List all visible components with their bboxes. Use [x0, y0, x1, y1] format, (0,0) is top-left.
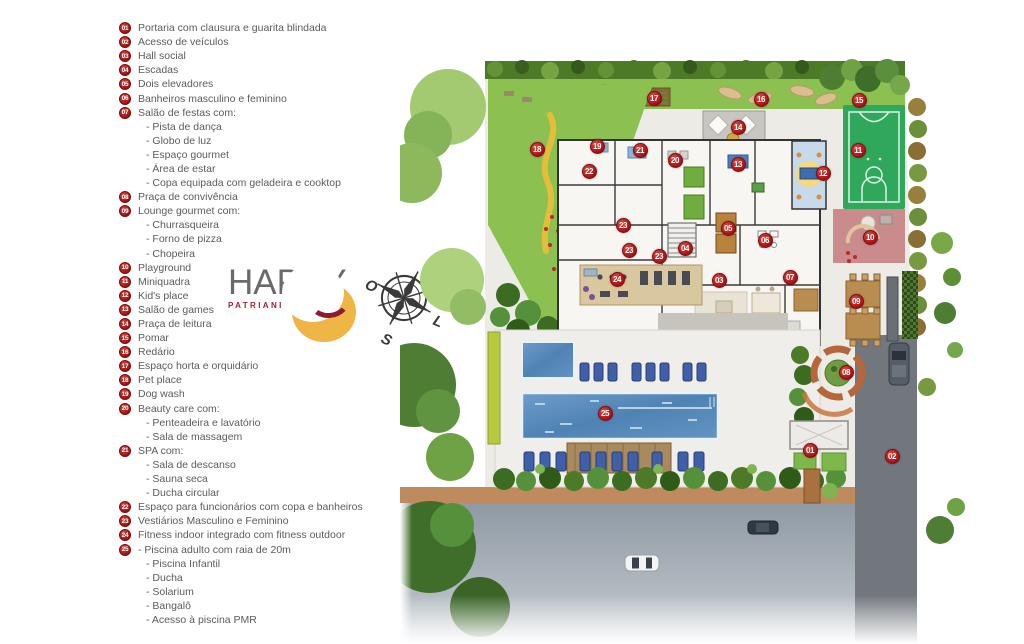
legend-number-badge: 23: [119, 515, 131, 527]
plan-marker-04: 04: [678, 241, 693, 256]
legend-item-label: Praça de leitura: [138, 318, 212, 330]
legend-number-badge: 21: [119, 445, 131, 457]
car-driveway: [889, 343, 909, 385]
entry-walkway: [804, 469, 820, 503]
compass-o: O: [362, 276, 380, 296]
plan-marker-10: 10: [863, 230, 878, 245]
legend-item-label: Praça de convivência: [138, 191, 238, 203]
legend-sub-item: - Ducha circular: [119, 486, 419, 500]
plan-marker-20: 20: [668, 153, 683, 168]
plan-marker-18: 18: [530, 142, 545, 157]
legend-item: 08Praça de convivência: [119, 190, 419, 204]
legend-sub-item: - Forno de pizza: [119, 232, 419, 246]
plan-marker-21: 21: [633, 143, 648, 158]
legend-item-label: Salão de games: [138, 304, 214, 316]
site-plan-drawing: [400, 55, 1024, 644]
legend-item: 17Espaço horta e orquidário: [119, 359, 419, 373]
legend-item: 21SPA com:: [119, 444, 419, 458]
legend-item: 20Beauty care com:: [119, 402, 419, 416]
plan-marker-23: 23: [652, 249, 667, 264]
smile-crescent-icon: [290, 282, 360, 340]
legend-number-badge: 24: [119, 529, 131, 541]
legend-item-label: - Piscina adulto com raia de 20m: [138, 544, 291, 556]
legend-number-badge: 10: [119, 262, 131, 274]
legend-sub-item: - Piscina Infantil: [119, 557, 419, 571]
legend-item-label: SPA com:: [138, 445, 183, 457]
legend-item-label: Redário: [138, 346, 175, 358]
legend-item-label: Escadas: [138, 64, 178, 76]
plan-marker-14: 14: [731, 120, 746, 135]
legend-item: 05Dois elevadores: [119, 77, 419, 91]
legend-item-label: Portaria com clausura e guarita blindada: [138, 22, 327, 34]
legend-item-label: Pet place: [138, 374, 182, 386]
miniquadra: [843, 105, 905, 209]
planter: [684, 167, 704, 187]
legend-sub-item: - Acesso à piscina PMR: [119, 613, 419, 627]
legend-number-badge: 11: [119, 276, 131, 288]
legend-number-badge: 18: [119, 374, 131, 386]
legend-sub-item: - Bangalô: [119, 599, 419, 613]
legend-item-label: Banheiros masculino e feminino: [138, 93, 287, 105]
legend-item: 09Lounge gourmet com:: [119, 204, 419, 218]
plan-marker-05: 05: [721, 221, 736, 236]
legend-number-badge: 01: [119, 22, 131, 34]
legend-number-badge: 12: [119, 290, 131, 302]
legend-sub-item: - Solarium: [119, 585, 419, 599]
legend-number-badge: 08: [119, 191, 131, 203]
plan-marker-13: 13: [731, 157, 746, 172]
legend-item: 07Salão de festas com:: [119, 106, 419, 120]
wood-floor: [794, 289, 818, 311]
legend-item: 18Pet place: [119, 373, 419, 387]
legend-item-label: Dois elevadores: [138, 78, 213, 90]
legend-sub-item: - Sala de descanso: [119, 458, 419, 472]
legend-item-label: Vestiários Masculino e Feminino: [138, 515, 289, 527]
legend-item: 24Fitness indoor integrado com fitness o…: [119, 528, 419, 542]
legend-item-label: Salão de festas com:: [138, 107, 236, 119]
car-street-dark: [748, 521, 778, 534]
plan-marker-19: 19: [590, 139, 605, 154]
plan-marker-23: 23: [622, 243, 637, 258]
site-plan: 0102030405060708091011121314151617181920…: [400, 55, 1024, 644]
legend-item-label: Lounge gourmet com:: [138, 205, 240, 217]
pool-deck: [488, 330, 820, 487]
legend-number-badge: 19: [119, 388, 131, 400]
plan-marker-08: 08: [839, 365, 854, 380]
plan-marker-23: 23: [616, 218, 631, 233]
plan-marker-11: 11: [851, 143, 866, 158]
legend-number-badge: 17: [119, 360, 131, 372]
plan-marker-07: 07: [783, 270, 798, 285]
legend-sub-item: - Penteadeira e lavatório: [119, 416, 419, 430]
legend-number-badge: 04: [119, 64, 131, 76]
plan-marker-15: 15: [852, 93, 867, 108]
legend-sub-item: - Ducha: [119, 571, 419, 585]
legend-number-badge: 09: [119, 205, 131, 217]
happy-patriani-logo: HAPPY PATRIANI: [228, 266, 368, 341]
legend-number-badge: 06: [119, 93, 131, 105]
legend-item: 01Portaria com clausura e guarita blinda…: [119, 21, 419, 35]
legend-number-badge: 22: [119, 501, 131, 513]
legend-number-badge: 13: [119, 304, 131, 316]
legend-number-badge: 02: [119, 36, 131, 48]
plan-marker-22: 22: [582, 164, 597, 179]
legend-sub-item: - Área de estar: [119, 162, 419, 176]
legend-number-badge: 05: [119, 78, 131, 90]
checker-hedge: [902, 271, 918, 339]
legend-number-badge: 03: [119, 50, 131, 62]
legend-item-label: Playground: [138, 262, 191, 274]
plan-marker-12: 12: [816, 166, 831, 181]
legend-item-label: Fitness indoor integrado com fitness out…: [138, 529, 345, 541]
legend-sub-item: - Copa equipada com geladeira e cooktop: [119, 176, 419, 190]
legend-number-badge: 25: [119, 544, 131, 556]
legend-item-label: Miniquadra: [138, 276, 190, 288]
sidewalk: [400, 487, 857, 503]
legend-item-label: Pomar: [138, 332, 169, 344]
legend-sub-item: - Globo de luz: [119, 134, 419, 148]
plan-marker-01: 01: [803, 443, 818, 458]
legend-item-label: Beauty care com:: [138, 403, 220, 415]
legend-item-label: Espaço horta e orquidário: [138, 360, 258, 372]
legend-item-label: Espaço para funcionários com copa e banh…: [138, 501, 363, 513]
east-trees: [918, 232, 965, 544]
car-street-white: [625, 555, 659, 571]
legend-number-badge: 14: [119, 318, 131, 330]
legend-number-badge: 07: [119, 107, 131, 119]
grill-counter: [887, 277, 898, 341]
legend-number-badge: 15: [119, 332, 131, 344]
main-pool: [522, 393, 718, 439]
lane-planter: [488, 332, 500, 444]
plan-marker-02: 02: [885, 449, 900, 464]
legend-item: 02Acesso de veículos: [119, 35, 419, 49]
legend-sub-item: - Churrasqueira: [119, 218, 419, 232]
legend-item: 03Hall social: [119, 49, 419, 63]
legend-sub-item: - Sauna seca: [119, 472, 419, 486]
legend-item: 22Espaço para funcionários com copa e ba…: [119, 500, 419, 514]
plan-marker-03: 03: [712, 273, 727, 288]
legend-item-label: Hall social: [138, 50, 186, 62]
compass-s: S: [378, 330, 394, 350]
plan-marker-16: 16: [754, 92, 769, 107]
legend-item: 23Vestiários Masculino e Feminino: [119, 514, 419, 528]
plan-marker-06: 06: [758, 233, 773, 248]
legend-number-badge: 20: [119, 403, 131, 415]
plan-marker-25: 25: [598, 406, 613, 421]
legend-item: 04Escadas: [119, 63, 419, 77]
legend-item: 06Banheiros masculino e feminino: [119, 91, 419, 105]
plan-marker-09: 09: [849, 294, 864, 309]
kids-pool: [522, 342, 574, 378]
legend-number-badge: 16: [119, 346, 131, 358]
legend-item-label: Kid's place: [138, 290, 188, 302]
legend-item: 25- Piscina adulto com raia de 20m: [119, 542, 419, 556]
legend-item-label: Acesso de veículos: [138, 36, 228, 48]
pet-bench: [504, 91, 514, 96]
legend-sub-item: - Espaço gourmet: [119, 148, 419, 162]
plan-marker-17: 17: [647, 91, 662, 106]
legend-item: 19Dog wash: [119, 387, 419, 401]
legend-sub-item: - Sala de massagem: [119, 430, 419, 444]
plan-marker-24: 24: [610, 272, 625, 287]
legend-sub-item: - Pista de dança: [119, 120, 419, 134]
legend-item-label: Dog wash: [138, 388, 185, 400]
fitness-room: [580, 265, 702, 305]
